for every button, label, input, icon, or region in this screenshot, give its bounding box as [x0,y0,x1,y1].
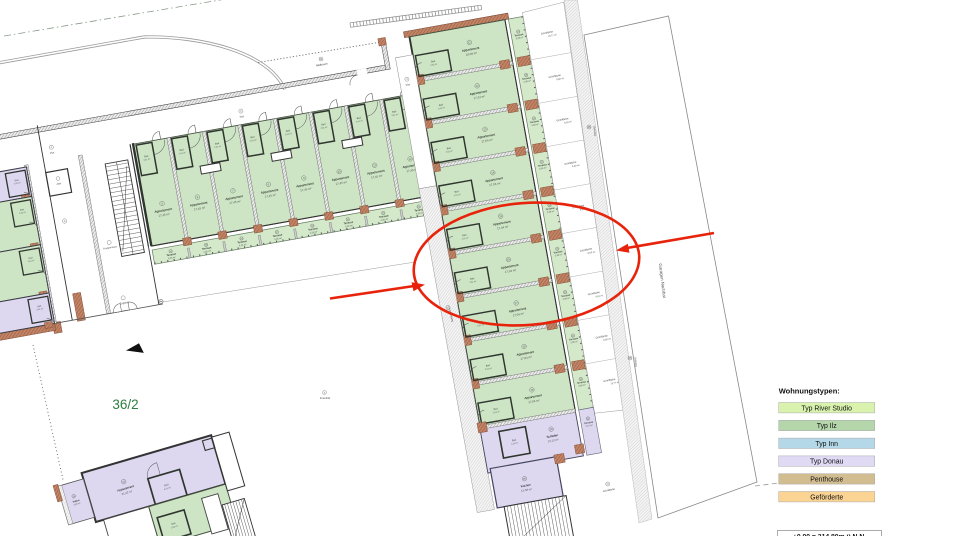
svg-text:Geförderte: Geförderte [810,494,843,501]
svg-text:Innenhof: Innenhof [320,396,330,400]
svg-text:Penthouse: Penthouse [810,477,843,484]
svg-text:Flur: Flur [239,114,244,119]
svg-text:Typ River Studio: Typ River Studio [801,405,852,412]
svg-text:Flur: Flur [405,82,410,87]
svg-text:Typ Inn: Typ Inn [815,441,838,448]
svg-text:Typ Ilz: Typ Ilz [817,423,837,430]
svg-text:Wohnungstypen:: Wohnungstypen: [779,387,840,396]
svg-text:Typ Donau: Typ Donau [810,459,843,466]
svg-text:36/2: 36/2 [112,397,138,412]
